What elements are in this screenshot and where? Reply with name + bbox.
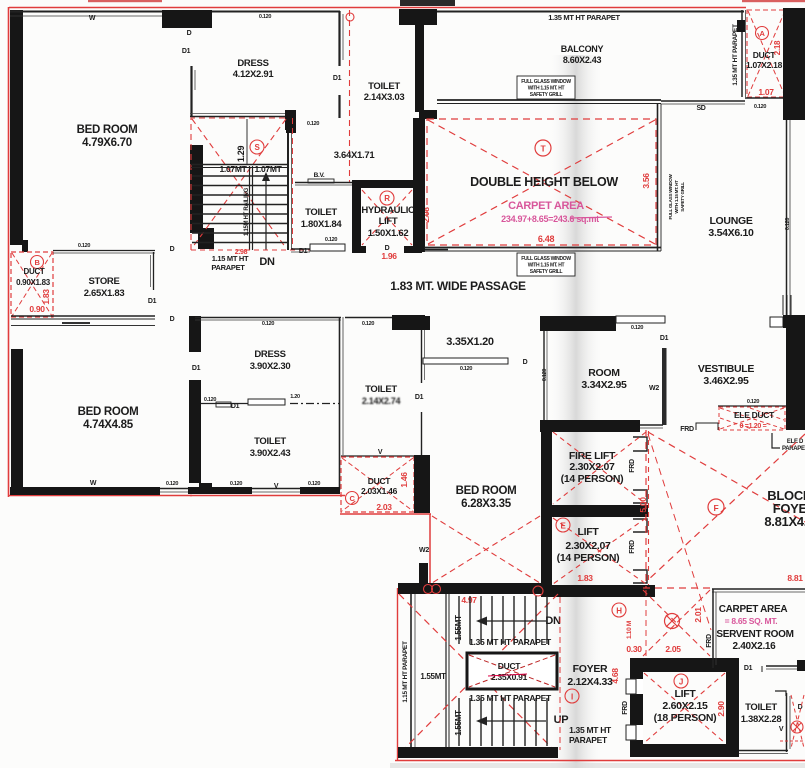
svg-text:WITH 1.15 MT. HT: WITH 1.15 MT. HT <box>674 180 679 214</box>
svg-text:D1: D1 <box>333 75 342 82</box>
svg-text:1.83: 1.83 <box>41 289 51 305</box>
svg-text:LOUNGE: LOUNGE <box>709 215 752 227</box>
svg-text:2.65X1.83: 2.65X1.83 <box>84 288 125 299</box>
svg-text:2.18: 2.18 <box>773 40 782 55</box>
svg-text:B: B <box>34 258 40 267</box>
svg-text:4.12X2.91: 4.12X2.91 <box>233 69 275 80</box>
svg-text:D1: D1 <box>744 665 753 672</box>
svg-text:D1: D1 <box>192 365 201 372</box>
svg-text:0.120: 0.120 <box>307 121 320 127</box>
svg-text:FRD: FRD <box>629 540 636 554</box>
svg-text:3.56: 3.56 <box>641 173 651 189</box>
svg-text:V: V <box>779 726 784 733</box>
svg-text:D1: D1 <box>148 298 157 305</box>
svg-text:TOILET: TOILET <box>368 81 400 92</box>
svg-text:(14 PERSON): (14 PERSON) <box>561 473 624 485</box>
svg-text:BED ROOM: BED ROOM <box>77 124 138 136</box>
svg-text:(14 PERSON): (14 PERSON) <box>557 552 620 564</box>
svg-text:W2: W2 <box>649 385 659 392</box>
svg-text:0 =1.20 =: 0 =1.20 = <box>740 423 767 430</box>
svg-text:2.12X4.33: 2.12X4.33 <box>567 676 613 688</box>
svg-text:DN: DN <box>545 615 561 627</box>
svg-text:1.96: 1.96 <box>381 251 397 261</box>
svg-text:1.35 MT HT PARAPET: 1.35 MT HT PARAPET <box>548 13 620 22</box>
svg-text:I: I <box>571 693 573 702</box>
svg-text:H: H <box>616 607 622 616</box>
svg-text:STORE: STORE <box>88 276 119 287</box>
svg-text:2.35X0.91: 2.35X0.91 <box>491 672 528 682</box>
svg-text:4.74X4.85: 4.74X4.85 <box>83 419 134 431</box>
svg-text:2.90: 2.90 <box>716 701 726 717</box>
svg-text:FRD: FRD <box>706 634 713 648</box>
svg-text:F: F <box>714 503 719 513</box>
svg-text:8.81X4.2: 8.81X4.2 <box>764 514 805 529</box>
svg-text:1.80X1.84: 1.80X1.84 <box>301 219 343 230</box>
svg-text:0.120: 0.120 <box>262 321 275 327</box>
svg-text:WITH 1.15 MT. HT: WITH 1.15 MT. HT <box>528 263 565 269</box>
svg-text:D1: D1 <box>660 335 669 342</box>
svg-text:A: A <box>759 29 765 38</box>
svg-text:DRESS: DRESS <box>237 58 268 69</box>
svg-text:4.97: 4.97 <box>461 595 477 605</box>
svg-text:1.29: 1.29 <box>236 146 246 163</box>
svg-text:C: C <box>349 494 355 503</box>
svg-text:0.30: 0.30 <box>626 644 642 654</box>
svg-text:0.120: 0.120 <box>259 14 272 20</box>
svg-text:1.07X2.18: 1.07X2.18 <box>746 60 783 70</box>
svg-text:2.30X2.07: 2.30X2.07 <box>565 540 611 552</box>
svg-text:2.14X2.74: 2.14X2.74 <box>362 396 401 406</box>
svg-text:1.83: 1.83 <box>577 573 593 583</box>
svg-text:0.120: 0.120 <box>460 366 473 372</box>
svg-text:W2: W2 <box>419 547 429 554</box>
svg-text:UP: UP <box>554 714 569 726</box>
svg-text:D1: D1 <box>415 394 424 401</box>
svg-text:0.120: 0.120 <box>308 481 321 487</box>
svg-text:FULL GLASS WINDOW: FULL GLASS WINDOW <box>521 79 571 85</box>
svg-text:TOILET: TOILET <box>365 384 397 395</box>
svg-text:FULL GLASS WINDOW: FULL GLASS WINDOW <box>668 173 673 219</box>
svg-text:1.15M HT RAILING: 1.15M HT RAILING <box>244 187 250 236</box>
svg-text:ROOM: ROOM <box>588 367 620 379</box>
svg-text:FRD: FRD <box>680 426 694 433</box>
svg-text:0.120: 0.120 <box>542 369 548 382</box>
svg-text:FRD: FRD <box>622 701 629 715</box>
svg-text:3.54X6.10: 3.54X6.10 <box>708 227 754 239</box>
svg-text:DUCT: DUCT <box>498 661 522 671</box>
svg-text:LIFT: LIFT <box>379 216 398 227</box>
svg-text:0.120: 0.120 <box>166 481 179 487</box>
svg-text:1.35 MT HT PARAPET: 1.35 MT HT PARAPET <box>469 637 552 647</box>
svg-text:0.120: 0.120 <box>325 237 338 243</box>
svg-text:0.120: 0.120 <box>785 218 791 231</box>
svg-text:3.46X2.95: 3.46X2.95 <box>703 375 749 387</box>
svg-text:DN: DN <box>259 256 275 268</box>
svg-text:0.120: 0.120 <box>754 104 767 110</box>
svg-text:D1: D1 <box>182 48 191 55</box>
svg-text:2.03: 2.03 <box>376 502 392 512</box>
svg-text:1.07: 1.07 <box>758 87 774 97</box>
svg-text:8.81: 8.81 <box>787 573 803 583</box>
svg-text:1.35 MT HT: 1.35 MT HT <box>569 725 612 735</box>
svg-text:J: J <box>679 678 683 687</box>
svg-text:DUCT: DUCT <box>23 267 44 276</box>
svg-text:6.48: 6.48 <box>538 234 555 244</box>
svg-text:0.120: 0.120 <box>78 243 91 249</box>
svg-text:1.07MT: 1.07MT <box>254 164 282 174</box>
svg-text:8.60X2.43: 8.60X2.43 <box>563 55 602 65</box>
svg-text:HYDRAULIC: HYDRAULIC <box>361 205 415 216</box>
svg-text:W: W <box>90 480 97 487</box>
svg-text:0.120: 0.120 <box>362 321 375 327</box>
svg-text:LIFT: LIFT <box>578 526 600 538</box>
svg-text:234.97+8.65=243.6 sq.mt: 234.97+8.65=243.6 sq.mt <box>501 214 599 224</box>
svg-text:SAFETY GRILL: SAFETY GRILL <box>680 182 685 212</box>
svg-text:1.38X2.28: 1.38X2.28 <box>741 714 782 725</box>
svg-text:1.46: 1.46 <box>399 472 409 488</box>
svg-text:BED ROOM: BED ROOM <box>78 406 139 418</box>
svg-text:B.V.: B.V. <box>314 172 325 179</box>
svg-text:D: D <box>187 30 192 37</box>
svg-text:LIFT: LIFT <box>675 688 697 700</box>
svg-text:D: D <box>523 359 528 366</box>
svg-text:3.34X2.95: 3.34X2.95 <box>581 379 627 391</box>
svg-text:DUCT: DUCT <box>368 476 392 486</box>
svg-text:SAFETY GRILL: SAFETY GRILL <box>530 92 563 98</box>
svg-text:2.30X2.07: 2.30X2.07 <box>569 461 615 473</box>
svg-text:CARPET AREA: CARPET AREA <box>719 604 788 615</box>
svg-text:2.60X2.15: 2.60X2.15 <box>662 700 708 712</box>
svg-text:BED ROOM: BED ROOM <box>456 485 517 497</box>
svg-text:2.14X3.03: 2.14X3.03 <box>364 92 405 103</box>
svg-text:4.79X6.70: 4.79X6.70 <box>82 137 132 149</box>
svg-text:(18 PERSON): (18 PERSON) <box>654 712 717 724</box>
svg-text:6.28X3.35: 6.28X3.35 <box>461 498 512 510</box>
svg-text:= 8.65 SQ. MT.: = 8.65 SQ. MT. <box>725 616 778 626</box>
svg-text:1.83 MT. WIDE PASSAGE: 1.83 MT. WIDE PASSAGE <box>390 279 526 293</box>
svg-text:2.05: 2.05 <box>665 644 681 654</box>
svg-text:V: V <box>274 483 279 490</box>
svg-text:DOUBLE HEIGHT BELOW: DOUBLE HEIGHT BELOW <box>470 175 618 189</box>
svg-text:D1: D1 <box>299 248 308 255</box>
svg-text:FRD: FRD <box>629 459 636 473</box>
svg-text:DRESS: DRESS <box>254 349 285 360</box>
svg-text:TOILET: TOILET <box>254 436 286 447</box>
svg-text:2.01: 2.01 <box>693 607 703 623</box>
svg-text:WITH 1.15 MT. HT: WITH 1.15 MT. HT <box>528 86 565 92</box>
svg-text:TOILET: TOILET <box>305 207 337 218</box>
svg-text:1.10 M: 1.10 M <box>626 621 633 639</box>
svg-text:1.55MT: 1.55MT <box>420 672 446 681</box>
svg-text:W: W <box>89 15 96 22</box>
svg-text:3.90X2.43: 3.90X2.43 <box>250 448 291 459</box>
svg-text:VESTIBULE: VESTIBULE <box>698 363 755 375</box>
svg-text:SD: SD <box>696 105 705 112</box>
svg-text:3.64X1.71: 3.64X1.71 <box>334 150 376 161</box>
svg-text:1.15 MT HT PARAPET: 1.15 MT HT PARAPET <box>402 641 409 703</box>
svg-text:0.120: 0.120 <box>631 325 644 331</box>
svg-text:2.03X1.46: 2.03X1.46 <box>361 486 398 496</box>
svg-text:CARPET AREA: CARPET AREA <box>508 200 584 212</box>
svg-text:ELE D: ELE D <box>787 439 804 445</box>
svg-text:1.20: 1.20 <box>290 394 300 400</box>
svg-text:BALCONY: BALCONY <box>561 44 604 54</box>
svg-text:V: V <box>378 449 383 456</box>
svg-text:1.07MT: 1.07MT <box>219 164 247 174</box>
svg-text:0.120: 0.120 <box>230 481 243 487</box>
svg-text:0.120: 0.120 <box>204 397 217 403</box>
svg-text:3.35X1.20: 3.35X1.20 <box>446 336 494 348</box>
svg-text:FOYER: FOYER <box>573 663 608 675</box>
svg-text:PARAPET: PARAPET <box>569 735 608 745</box>
svg-text:R: R <box>384 194 390 203</box>
svg-text:PARAPET: PARAPET <box>211 263 245 272</box>
svg-text:ELE DUCT: ELE DUCT <box>734 410 775 420</box>
svg-text:PARAPET: PARAPET <box>782 446 805 452</box>
svg-text:D1: D1 <box>231 403 240 410</box>
svg-text:1.50X1.62: 1.50X1.62 <box>368 228 409 239</box>
svg-text:SAFETY GRILL: SAFETY GRILL <box>530 269 563 275</box>
svg-text:D: D <box>170 246 175 253</box>
svg-text:2.40X2.16: 2.40X2.16 <box>733 641 777 652</box>
svg-text:FULL GLASS WINDOW: FULL GLASS WINDOW <box>521 256 571 262</box>
svg-text:SERVENT ROOM: SERVENT ROOM <box>716 629 793 640</box>
svg-text:TOILET: TOILET <box>745 702 777 713</box>
svg-text:0.90X1.83: 0.90X1.83 <box>16 278 51 287</box>
svg-text:1.35 MT HT PARAPET: 1.35 MT HT PARAPET <box>732 24 739 86</box>
svg-text:D: D <box>170 316 175 323</box>
svg-text:0.120: 0.120 <box>747 399 760 405</box>
svg-text:3.90X2.30: 3.90X2.30 <box>250 361 291 372</box>
